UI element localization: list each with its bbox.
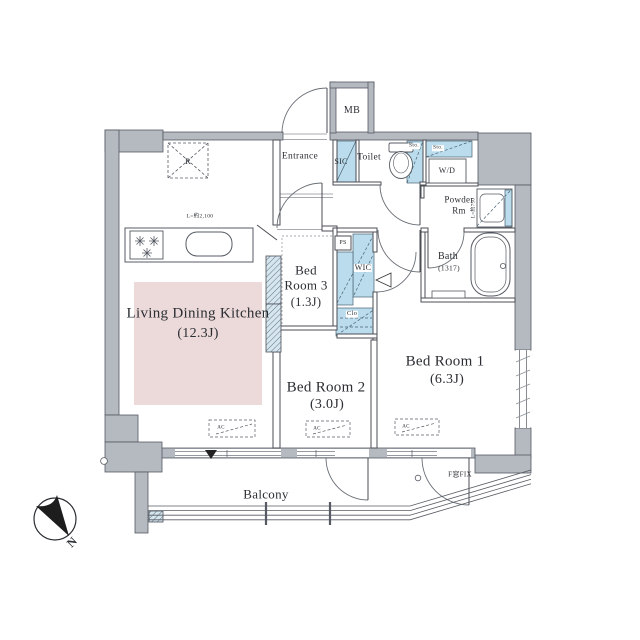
floor-fills — [134, 282, 262, 405]
balcony-wall-left — [135, 472, 148, 533]
balcony-railing — [148, 470, 531, 525]
label-storage-toilet: Sto. — [408, 143, 420, 149]
label-vanity-width: L=約750 — [472, 198, 477, 218]
label-ac-ldk: AC — [217, 426, 225, 431]
label-kitchen-length: L=約2,100 — [187, 214, 214, 220]
room-size-bedroom1: (6.3J) — [430, 373, 464, 387]
ac-box-ldk — [209, 420, 255, 437]
room-label-toilet: Toilet — [357, 153, 381, 163]
label-storage-wd: Sto. — [432, 145, 444, 151]
wall-left-step — [105, 415, 138, 442]
label-ac-bedroom1: AC — [402, 425, 410, 430]
floorplan-drawing — [0, 0, 640, 640]
room-size-bedroom2: (3.0J) — [310, 398, 344, 412]
toilet-door-arc — [380, 185, 420, 225]
kitchen — [125, 228, 253, 262]
room-label-ldk: Living Dining Kitchen — [127, 307, 270, 322]
balcony-partition — [149, 511, 163, 522]
room-label-bedroom3-1: Bed — [295, 264, 317, 277]
drain-circle — [415, 475, 421, 481]
kitchen-sink — [186, 232, 232, 256]
wic-entry-marker — [376, 273, 391, 287]
room-label-bedroom2: Bed Room 2 — [287, 381, 366, 396]
bedroom2-door-opening — [335, 449, 369, 457]
mb-wall-right — [368, 82, 374, 133]
bedroom1-balcony-door-arc — [422, 458, 469, 505]
wall-right-lower — [515, 428, 531, 458]
mb-wall-left — [330, 82, 336, 133]
room-size-bath: (1317) — [438, 264, 460, 272]
wall-bottom-right-block — [475, 455, 531, 473]
bath-step — [432, 291, 465, 298]
bedroom1-door-opening — [437, 449, 471, 457]
wall-left — [105, 130, 119, 415]
bedroom3-door-arc — [277, 183, 322, 228]
label-refrigerator: R — [185, 157, 191, 166]
ldk-floor-highlight — [134, 282, 262, 405]
label-closet: Clo — [346, 311, 358, 318]
room-label-entrance: Entrance — [282, 152, 318, 162]
label-wd: W/D — [439, 167, 455, 175]
room-size-bedroom3: (1.3J) — [291, 296, 322, 309]
wall-top-right-block — [478, 133, 531, 185]
mb-wall-top — [330, 82, 374, 88]
stove — [130, 231, 163, 259]
wic-door-arc — [377, 252, 416, 292]
wall-top-a — [163, 132, 283, 140]
room-label-bath: Bath — [438, 252, 458, 262]
wall-left-block — [105, 442, 162, 472]
room-label-powder-1: Powder — [444, 196, 473, 205]
pipe-circle — [101, 458, 108, 465]
room-label-sic: SIC — [334, 158, 347, 166]
room-label-bedroom3-2: Room 3 — [284, 279, 327, 292]
bedroom2-balcony-door-arc — [326, 458, 368, 500]
floor-plan: Living Dining Kitchen (12.3J) Bed Room 1… — [0, 0, 640, 640]
label-ps: PS — [339, 240, 346, 246]
room-label-balcony: Balcony — [243, 488, 288, 501]
entrance-door-arc — [282, 88, 327, 133]
wall-right-upper — [515, 185, 531, 350]
ldk-window-opening — [175, 449, 281, 457]
label-fixed-window: F窓FIX — [448, 472, 472, 479]
bathtub-drain — [500, 263, 505, 268]
label-ac-bedroom2: AC — [313, 427, 321, 432]
room-label-powder-2: Rm — [452, 207, 466, 216]
room-size-ldk: (12.3J) — [177, 327, 218, 341]
room-label-mb: MB — [344, 106, 360, 116]
vanity-basin — [480, 194, 504, 222]
ldk-door-leaf — [257, 225, 277, 240]
label-wic: WIC — [354, 264, 372, 272]
wall-top-b — [330, 132, 478, 140]
room-label-bedroom1: Bed Room 1 — [406, 355, 485, 370]
